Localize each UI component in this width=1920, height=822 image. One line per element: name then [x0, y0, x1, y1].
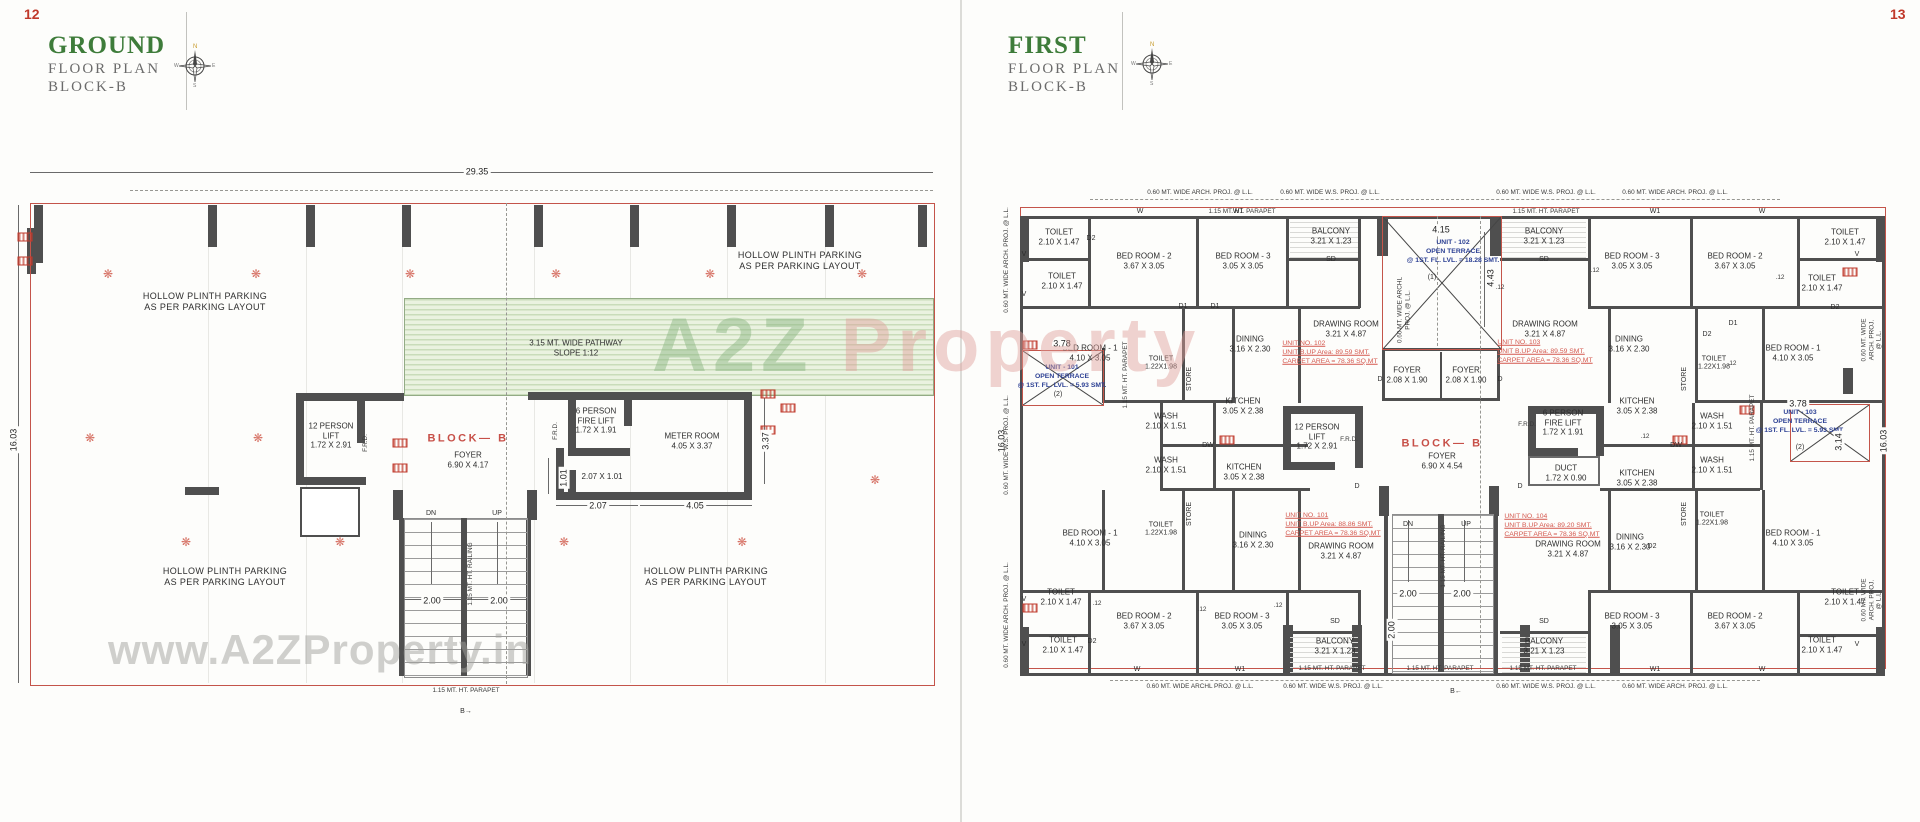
plan-label: 3.15 MT. WIDE PATHWAY SLOPE 1:12 — [529, 338, 623, 357]
plan-label: DUCT 1.72 X 0.90 — [1546, 463, 1587, 482]
plan-w — [1797, 216, 1800, 308]
plan-w — [1182, 490, 1185, 590]
plan-label: TOILET 1.22X1.98 — [1696, 512, 1728, 529]
plan-label: 16.03 — [9, 427, 20, 454]
plan-label: BED ROOM - 3 3.05 X 3.05 — [1604, 251, 1659, 270]
column-marker — [18, 233, 33, 242]
plan-label: 0.60 MT. WIDE ARCH. PROJ. @ L.L. — [1860, 576, 1883, 624]
plan-ln — [1408, 520, 1409, 582]
plan-w — [1283, 406, 1291, 468]
plan-w — [1088, 590, 1091, 673]
plan-label: 0.60 MT. WIDE W.S. PROJ. @ L.L. — [1283, 683, 1383, 691]
plan-label: TOILET 2.10 X 1.47 — [1802, 273, 1843, 292]
plan-label: SD — [1539, 256, 1549, 264]
plan-w — [1182, 306, 1185, 403]
plan-label: W1 — [1235, 666, 1246, 674]
column-marker — [393, 439, 408, 448]
plan-label: 12 PERSON LIFT 1.72 X 2.91 — [1295, 423, 1340, 452]
plan-w — [1288, 258, 1360, 261]
parking-flower-icon: ❋ — [181, 535, 191, 549]
parking-flower-icon: ❋ — [705, 267, 715, 281]
plan-label: V — [1022, 596, 1027, 604]
plan-label: W1 — [1650, 666, 1661, 674]
plan-label: WASH 2.10 X 1.51 — [1146, 455, 1187, 474]
plan-dh — [1090, 199, 1780, 201]
plan-label: 1.15 MT. HT. RAILING — [467, 542, 475, 605]
plan-label: F.R.D. — [362, 434, 370, 452]
plan-label: TOILET 2.10 X 1.47 — [1042, 271, 1083, 290]
plan-label: WASH 2.10 X 1.51 — [1146, 411, 1187, 430]
plan-label: 2.07 X 1.01 — [582, 472, 623, 482]
parking-flower-icon: ❋ — [737, 535, 747, 549]
plan-label: .12 — [1496, 284, 1505, 292]
plan-label: .12 — [1641, 433, 1650, 441]
plan-label: D — [1354, 483, 1359, 491]
plan-label: .12 — [1776, 274, 1785, 282]
plan-label: 1.01 — [559, 467, 570, 489]
plan-w — [1588, 306, 1885, 309]
plan-label: 2.00 — [1387, 619, 1398, 641]
plan-label: 0.60 MT. WIDE ARCHL PROJ. @ L.L. — [1396, 277, 1411, 343]
plan-label: UP — [492, 510, 502, 518]
plan-label: UNIT NO. 103 UNIT B.UP Area: 89.59 SMT. … — [1497, 339, 1592, 365]
plan-label: KITCHEN 3.05 X 2.38 — [1224, 462, 1265, 481]
plan-label: 2.00 — [421, 596, 443, 607]
plan-label: STORE — [1186, 502, 1194, 526]
plan-label: HOLLOW PLINTH PARKING AS PER PARKING LAY… — [143, 291, 267, 313]
plan-label: DRAWING ROOM 3.21 X 4.87 — [1535, 539, 1600, 558]
plan-label: V — [1022, 291, 1027, 299]
parking-flower-icon: ❋ — [405, 267, 415, 281]
plan-label: BED ROOM - 3 3.05 X 3.05 — [1215, 251, 1270, 270]
plan-w — [1232, 306, 1235, 403]
plan-dh — [1110, 680, 1760, 682]
plan-label: 3.37 — [761, 430, 772, 452]
plan-ln — [1464, 520, 1465, 582]
plan-label: 2.00 — [1397, 589, 1419, 600]
parking-flower-icon: ❋ — [85, 431, 95, 445]
plan-label: BED ROOM - 2 3.67 X 3.05 — [1116, 251, 1171, 270]
plan-label: D — [1497, 376, 1502, 384]
plan-label: 2.07 — [587, 501, 609, 512]
plan-label: METER ROOM 4.05 X 3.37 — [664, 431, 719, 450]
plan-label: TOILET 2.10 X 1.47 — [1825, 587, 1866, 606]
plan-label: UNIT - 101 OPEN TERRACE @ 1ST. FL. LVL. … — [1018, 364, 1107, 390]
plan-label: 0.60 MT. WIDE W.S. PROJ. @ L.L. — [1280, 189, 1380, 197]
plan-label: D1 — [1179, 303, 1188, 311]
plan-w — [1695, 306, 1698, 403]
plan-w — [1608, 306, 1611, 403]
plan-label: W — [1759, 666, 1766, 674]
plan-label: B→ — [460, 708, 472, 716]
plan-label: UNIT - 103 OPEN TERRACE @ 1ST. FL. LVL. … — [1756, 409, 1845, 435]
plan-w — [1196, 590, 1199, 673]
plan-label: 6 PERSON FIRE LIFT 1.72 X 1.91 — [1543, 409, 1584, 438]
plan-label: V — [1022, 251, 1027, 259]
plan-label: 1.15 MT. HT. PARAPET — [1299, 665, 1366, 673]
plan-label: BED ROOM - 2 3.67 X 3.05 — [1707, 251, 1762, 270]
plan-label: TOILET 2.10 X 1.47 — [1825, 227, 1866, 246]
plan-label: 0.60 MT. WIDE W.S. PROJ. @ L.L. — [1496, 683, 1596, 691]
plan-label: UNIT NO. 104 UNIT B.UP Area: 89.20 SMT. … — [1504, 513, 1599, 539]
plan-label: 3.78 — [1787, 399, 1809, 410]
plan-label: 4.05 — [684, 501, 706, 512]
plan-label: FOYER 6.90 X 4.54 — [1422, 451, 1463, 470]
plan-label: TOILET 2.10 X 1.47 — [1802, 635, 1843, 654]
parking-flower-icon: ❋ — [253, 431, 263, 445]
plan-w — [1088, 216, 1091, 308]
plan-label: BLOCK— B — [427, 432, 508, 445]
plan-label: 3.14 — [1834, 431, 1845, 453]
plan-label: 1.15 MT. HT. PARAPET — [1749, 395, 1757, 462]
column-marker — [1023, 341, 1038, 350]
plan-label: D2 — [1831, 304, 1840, 312]
plan-label: TOILET 1.22X1.98 — [1698, 356, 1730, 373]
plan-label: 0.60 MT. WIDE ARCH. PROJ. @ L.L. — [1622, 683, 1728, 691]
plan-label: D2 — [1087, 235, 1096, 243]
plan-ln — [1598, 456, 1600, 486]
plan-w — [1382, 348, 1385, 401]
plan-w — [1600, 488, 1760, 491]
parking-flower-icon: ❋ — [251, 267, 261, 281]
plan-label: W1 — [1650, 208, 1661, 216]
plan-label: (2) — [1796, 444, 1805, 452]
plan-w — [1286, 216, 1289, 308]
plan-label: V — [1855, 251, 1860, 259]
plan-label: 1.15 MT. HT. PARAPET — [1510, 665, 1577, 673]
plan-label: FOYER 2.08 X 1.90 — [1387, 365, 1428, 384]
plan-w — [1020, 258, 1090, 261]
plan-label: DRAWING ROOM 3.21 X 4.87 — [1512, 319, 1577, 338]
plan-label: DINING 3.16 X 2.30 — [1609, 334, 1650, 353]
plan-w — [1283, 462, 1335, 470]
plan-label: V — [1022, 641, 1027, 649]
parking-flower-icon: ❋ — [103, 267, 113, 281]
plan-w — [1440, 352, 1442, 400]
plan-label: D — [1377, 376, 1382, 384]
plan-label: BALCONY 3.21 X 1.23 — [1311, 226, 1352, 245]
plan-label: DINING 3.16 X 2.30 — [1230, 334, 1271, 353]
plan-label: 1.15 MT. HT. PARAPET — [1407, 665, 1474, 673]
plan-w — [1283, 406, 1363, 414]
plan-label: 0.60 MT. WIDE W.S. PROJ. @ L.L. — [1496, 189, 1596, 197]
plan-label: 12 PERSON LIFT 1.72 X 2.91 — [309, 422, 354, 451]
plan-label: 1.15 MT. HT. PARAPET — [433, 687, 500, 695]
plan-label: W — [1134, 666, 1141, 674]
plan-w — [1489, 486, 1499, 516]
parking-flower-icon: ❋ — [335, 535, 345, 549]
plan-label: TOILET 2.10 X 1.47 — [1039, 227, 1080, 246]
plan-w — [1358, 216, 1361, 308]
plan-label: UNIT NO. 101 UNIT B.UP Area: 88.86 SMT. … — [1285, 512, 1380, 538]
column-marker — [1023, 604, 1038, 613]
plan-label: WASH 2.10 X 1.51 — [1692, 411, 1733, 430]
plan-label: TOILET 2.10 X 1.47 — [1043, 635, 1084, 654]
plan-w — [1588, 590, 1591, 673]
plan-label: DN — [1403, 521, 1413, 529]
plan-label: BED ROOM - 2 3.67 X 3.05 — [1116, 611, 1171, 630]
plan-label: 0.60 MT. WIDE ARCH. PROJ. @ L.L. — [1003, 207, 1011, 313]
plan-label: BALCONY 3.21 X 1.23 — [1524, 226, 1565, 245]
plan-label: DN — [426, 510, 436, 518]
plan-label: SD — [1330, 618, 1340, 626]
plan-label: BALCONY 3.21 X 1.23 — [1524, 636, 1565, 655]
plan-dv — [1437, 216, 1439, 346]
plan-w — [1588, 216, 1591, 308]
plan-label: STORE — [1681, 367, 1689, 391]
plan-label: 16.03 — [1879, 428, 1890, 455]
plan-label: TOILET 2.10 X 1.47 — [1041, 587, 1082, 606]
plan-label: 1.15 MT. HT. RAILING — [1440, 524, 1448, 587]
plan-label: .12 — [1728, 360, 1737, 368]
plan-label: .12 — [1093, 600, 1102, 608]
column-marker — [761, 390, 776, 399]
plan-label: UNIT NO. 102 UNIT B.UP Area: 89.59 SMT. … — [1282, 340, 1377, 366]
plan-label: (1) — [1428, 274, 1437, 282]
plan-label: UP — [1461, 521, 1471, 529]
plan-w — [1695, 490, 1698, 590]
plan-label: W — [1759, 208, 1766, 216]
plan-label: 0.60 MT. WIDE ARCH. PROJ. @ L.L. — [1003, 562, 1011, 668]
plan-label: 0.60 MT. WIDE ARCHL PROJ. @ L.L. — [1146, 683, 1253, 691]
plan-w — [1298, 490, 1301, 590]
plan-label: 4.15 — [1430, 225, 1452, 236]
plan-w — [1690, 216, 1693, 308]
first-floor-plan: TOILET 2.10 X 1.47TOILET 2.10 X 1.47TOIL… — [0, 0, 1920, 822]
plan-label: UNIT - 102 OPEN TERRACE @ 1ST. FL. LVL. … — [1407, 239, 1499, 265]
plan-label: 29.35 — [464, 167, 491, 178]
parking-flower-icon: ❋ — [559, 535, 569, 549]
plan-label: 0.60 MT. WIDE ARCH. PROJ. @ L.L. — [1147, 189, 1253, 197]
plan-label: D1 — [1729, 320, 1738, 328]
plan-w — [1596, 406, 1604, 456]
plan-label: BED ROOM - 3 3.05 X 3.05 — [1604, 611, 1659, 630]
column-marker — [1843, 268, 1858, 277]
plan-label: DW — [1202, 442, 1214, 450]
plan-label: KITCHEN 3.05 X 2.38 — [1223, 396, 1264, 415]
plan-label: WASH 2.10 X 1.51 — [1692, 455, 1733, 474]
plan-label: HOLLOW PLINTH PARKING AS PER PARKING LAY… — [163, 566, 287, 588]
plan-label: .12 — [1591, 267, 1600, 275]
plan-label: F.R.D. — [1518, 421, 1536, 429]
plan-label: 1.15 MT. HT. PARAPET — [1513, 208, 1580, 216]
plan-w — [1797, 258, 1885, 261]
plan-label: STORE — [1186, 367, 1194, 391]
plan-label: BED ROOM - 1 4.10 X 3.05 — [1062, 528, 1117, 547]
plan-label: 6 PERSON FIRE LIFT 1.72 X 1.91 — [576, 407, 617, 436]
plan-label: KITCHEN 3.05 X 2.38 — [1617, 468, 1658, 487]
plan-label: DW — [1670, 442, 1682, 450]
plan-label: TOILET 1.22X1.98 — [1145, 522, 1177, 539]
plan-w — [1020, 627, 1029, 673]
plan-label: STORE — [1681, 502, 1689, 526]
plan-w — [1843, 368, 1853, 394]
plan-w — [1876, 216, 1885, 262]
plan-label: DRAWING ROOM 3.21 X 4.87 — [1313, 319, 1378, 338]
plan-label: BALCONY 3.21 X 1.23 — [1315, 636, 1356, 655]
brochure-page: 12 13 GROUND FLOOR PLAN BLOCK-B N S W E … — [0, 0, 1920, 822]
column-marker — [393, 464, 408, 473]
plan-label: W — [1137, 208, 1144, 216]
plan-label: DRAWING ROOM 3.21 X 4.87 — [1308, 541, 1373, 560]
plan-label: B← — [1450, 688, 1462, 696]
plan-label: .12 — [1274, 602, 1283, 610]
plan-label: KITCHEN 3.05 X 2.38 — [1617, 396, 1658, 415]
plan-w — [1797, 590, 1800, 673]
parking-flower-icon: ❋ — [551, 267, 561, 281]
plan-label: BED ROOM - 1 4.10 X 3.05 — [1765, 343, 1820, 362]
plan-ln — [1528, 456, 1530, 486]
plan-label: 0.60 MT. WIDE W.S. PROJ. @ L.L. — [1003, 395, 1011, 495]
plan-w — [1610, 625, 1620, 673]
plan-label: D — [1517, 483, 1522, 491]
plan-label: DINING 3.16 X 2.30 — [1233, 530, 1274, 549]
plan-label: SD — [1539, 618, 1549, 626]
plan-label: DINING 3.16 X 2.30 — [1610, 532, 1651, 551]
plan-label: BED ROOM - 3 3.05 X 3.05 — [1214, 611, 1269, 630]
plan-label: 0.60 MT. WIDE ARCH. PROJ. @ L.L. — [1860, 316, 1883, 364]
plan-w — [1020, 306, 1360, 309]
plan-ln — [1528, 484, 1600, 486]
plan-label: 3.78 — [1051, 339, 1073, 350]
plan-label: SD — [1326, 256, 1336, 264]
plan-label: FOYER 6.90 X 4.17 — [448, 450, 489, 469]
plan-w — [1494, 514, 1498, 674]
plan-label: D2 — [1703, 331, 1712, 339]
plan-label: BLOCK— B — [1401, 437, 1482, 450]
plan-label: BED ROOM - 2 3.67 X 3.05 — [1707, 611, 1762, 630]
plan-label: BED ROOM - 1 4.10 X 3.05 — [1765, 528, 1820, 547]
plan-label: 2.00 — [1451, 589, 1473, 600]
plan-label: .12 — [1198, 606, 1207, 614]
column-marker — [18, 257, 33, 266]
plan-label: V — [1855, 641, 1860, 649]
plan-label: HOLLOW PLINTH PARKING AS PER PARKING LAY… — [738, 250, 862, 272]
plan-label: FOYER 2.08 X 1.90 — [1446, 365, 1487, 384]
plan-w — [1876, 627, 1885, 673]
plan-w — [1384, 514, 1388, 674]
plan-label: HOLLOW PLINTH PARKING AS PER PARKING LAY… — [644, 566, 768, 588]
plan-label: (2) — [1054, 391, 1063, 399]
plan-w — [1690, 590, 1693, 673]
plan-w — [1528, 448, 1578, 456]
plan-label: 2.00 — [488, 596, 510, 607]
plan-label: F.R.D. — [1340, 436, 1358, 444]
column-marker — [781, 404, 796, 413]
plan-label: TOILET 1.22X1.98 — [1145, 356, 1177, 373]
plan-label: D2 — [1088, 638, 1097, 646]
plan-label: D2 — [1648, 543, 1657, 551]
plan-label: 1.15 MT. HT. PARAPET — [1122, 342, 1130, 409]
plan-ln — [1528, 456, 1600, 458]
plan-label: 0.60 MT. WIDE ARCH. PROJ. @ L.L. — [1622, 189, 1728, 197]
parking-flower-icon: ❋ — [870, 473, 880, 487]
plan-label: D1 — [1211, 303, 1220, 311]
column-marker — [1220, 436, 1235, 445]
plan-label: W1 — [1233, 208, 1244, 216]
plan-w — [1196, 216, 1199, 308]
plan-label: F.R.D. — [552, 422, 560, 440]
